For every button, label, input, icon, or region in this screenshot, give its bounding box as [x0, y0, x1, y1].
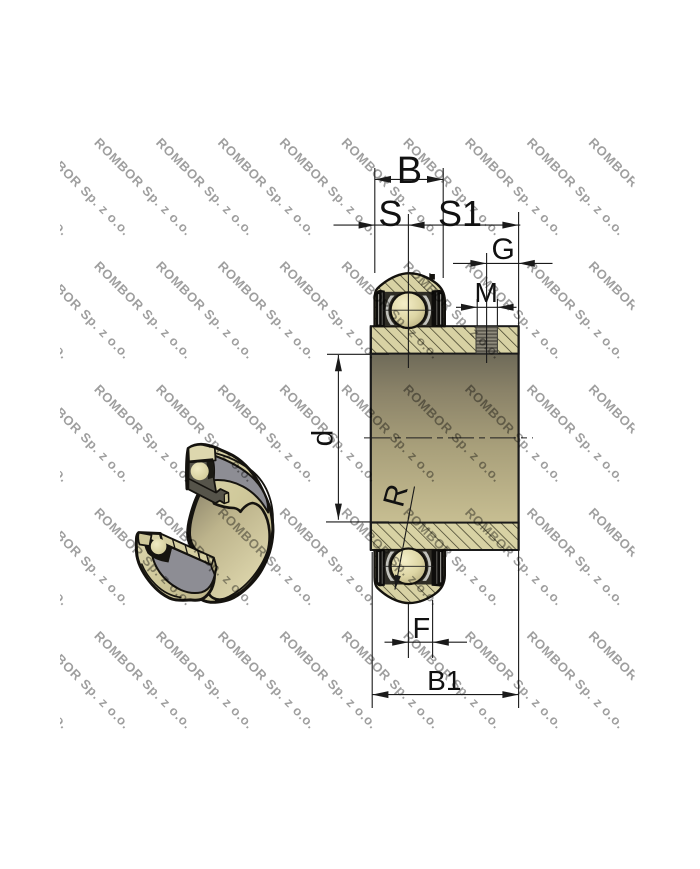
svg-text:F: F — [412, 613, 430, 645]
svg-text:G: G — [492, 233, 515, 266]
svg-text:d: d — [307, 430, 340, 447]
svg-text:ROMBOR Sp. z o.o.: ROMBOR Sp. z o.o. — [0, 382, 72, 486]
svg-text:ROMBOR Sp. z o.o.: ROMBOR Sp. z o.o. — [648, 382, 700, 486]
svg-text:ROMBOR Sp. z o.o.: ROMBOR Sp. z o.o. — [586, 382, 690, 486]
svg-text:ROMBOR Sp. z o.o.: ROMBOR Sp. z o.o. — [0, 258, 72, 362]
svg-text:M: M — [475, 277, 498, 308]
svg-text:S1: S1 — [438, 193, 482, 234]
svg-text:ROMBOR Sp. z o.o.: ROMBOR Sp. z o.o. — [586, 505, 690, 609]
svg-text:ROMBOR Sp. z o.o.: ROMBOR Sp. z o.o. — [0, 628, 72, 732]
svg-text:ROMBOR Sp. z o.o.: ROMBOR Sp. z o.o. — [0, 505, 72, 609]
svg-text:ROMBOR Sp. z o.o.: ROMBOR Sp. z o.o. — [586, 135, 690, 239]
svg-text:B1: B1 — [427, 665, 461, 696]
svg-text:S: S — [378, 193, 402, 234]
svg-text:ROMBOR Sp. z o.o.: ROMBOR Sp. z o.o. — [586, 258, 690, 362]
svg-text:ROMBOR Sp. z o.o.: ROMBOR Sp. z o.o. — [648, 135, 700, 239]
svg-text:ROMBOR Sp. z o.o.: ROMBOR Sp. z o.o. — [648, 628, 700, 732]
svg-text:ROMBOR Sp. z o.o.: ROMBOR Sp. z o.o. — [648, 258, 700, 362]
svg-text:ROMBOR Sp. z o.o.: ROMBOR Sp. z o.o. — [0, 135, 72, 239]
svg-text:ROMBOR Sp. z o.o.: ROMBOR Sp. z o.o. — [586, 628, 690, 732]
svg-text:B: B — [397, 150, 422, 192]
svg-text:ROMBOR Sp. z o.o.: ROMBOR Sp. z o.o. — [648, 505, 700, 609]
